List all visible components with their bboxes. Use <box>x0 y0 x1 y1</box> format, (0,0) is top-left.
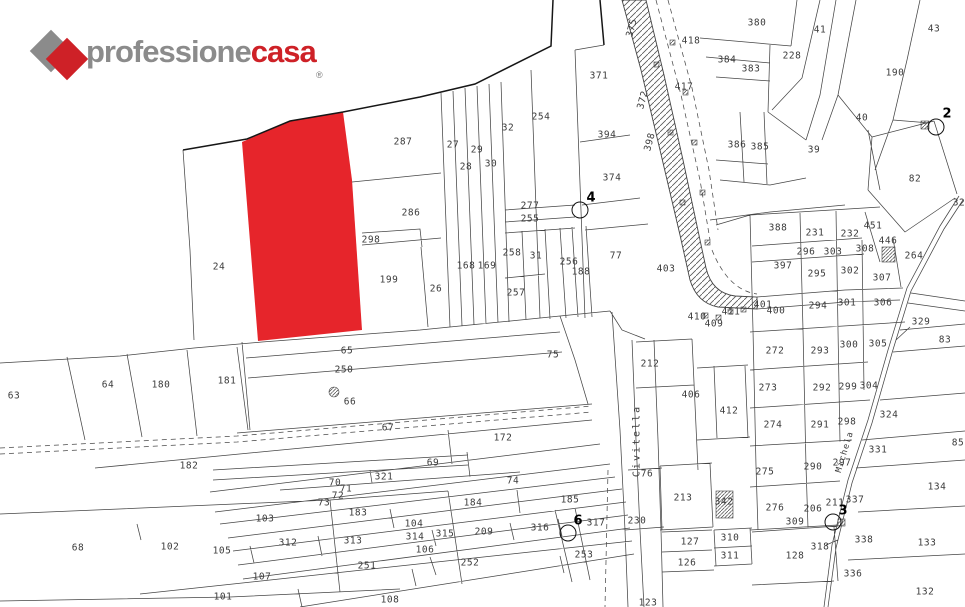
parcel-label: 386 <box>728 140 747 151</box>
parcel-label: 308 <box>856 244 875 255</box>
parcel-label: 29 <box>471 145 483 156</box>
parcel-label: 295 <box>808 269 827 280</box>
parcel-label: 290 <box>804 462 823 473</box>
parcel-label: 394 <box>598 130 617 141</box>
parcel-label: 68 <box>72 543 84 554</box>
parcel-label: 169 <box>478 261 497 272</box>
parcel-label: 310 <box>721 533 740 544</box>
parcel-label: 250 <box>335 365 354 376</box>
parcel-label: 300 <box>840 340 859 351</box>
parcel-label: 277 <box>521 201 540 212</box>
parcel-label: 294 <box>809 301 828 312</box>
parcel-label: 384 <box>718 55 737 66</box>
parcel-label: 273 <box>759 383 778 394</box>
parcel-label: 190 <box>886 68 905 79</box>
parcel-label: 380 <box>748 18 767 29</box>
parcel-label: 213 <box>674 493 693 504</box>
parcel-label: 108 <box>381 595 400 606</box>
parcel-label: 128 <box>786 551 805 562</box>
parcel-label: 67 <box>382 423 394 434</box>
parcel-label: 303 <box>824 247 843 258</box>
parcel-label: 304 <box>860 381 879 392</box>
parcel-label: 417 <box>675 82 694 93</box>
parcel-label: 301 <box>838 298 857 309</box>
cadastral-map-page: 2428728629819926272829303225427725525831… <box>0 0 965 607</box>
parcel-label: 188 <box>572 267 591 278</box>
parcel-label: 298 <box>838 417 857 428</box>
parcel-label: 264 <box>905 251 924 262</box>
parcel-label: 126 <box>678 558 697 569</box>
parcel-label: 28 <box>460 162 472 173</box>
parcel-label: 184 <box>464 498 483 509</box>
parcel-label: 412 <box>720 406 739 417</box>
parcel-label: 40 <box>856 113 868 124</box>
parcel-label: 383 <box>742 64 761 75</box>
parcel-label: 331 <box>869 445 888 456</box>
parcel-label: 385 <box>751 142 770 153</box>
survey-point-circle <box>825 514 842 531</box>
parcel-label: 24 <box>213 262 225 273</box>
survey-point-number: 4 <box>586 191 595 206</box>
parcel-label: 409 <box>705 319 724 330</box>
parcel-labels-layer: 2428728629819926272829303225427725525831… <box>0 0 965 607</box>
parcel-label: 336 <box>844 569 863 580</box>
parcel-label: 31 <box>530 251 542 262</box>
registered-trademark-symbol: ® <box>316 70 323 80</box>
parcel-label: 318 <box>811 542 830 553</box>
parcel-label: 272 <box>766 346 785 357</box>
parcel-label: 134 <box>928 482 947 493</box>
parcel-label: 311 <box>721 551 740 562</box>
parcel-label: 76 <box>641 469 653 480</box>
parcel-label: 321 <box>375 472 394 483</box>
parcel-label: 73 <box>318 498 330 509</box>
parcel-label: 83 <box>939 335 951 346</box>
parcel-label-rotated: 375 <box>624 18 639 39</box>
survey-point-circle <box>572 202 589 219</box>
parcel-label: 312 <box>279 538 298 549</box>
parcel-label: 230 <box>628 516 647 527</box>
parcel-label: 411 <box>722 307 741 318</box>
parcel-label: 397 <box>774 261 793 272</box>
parcel-label: 105 <box>213 546 232 557</box>
parcel-label: 199 <box>380 275 399 286</box>
parcel-label: 107 <box>253 572 272 583</box>
parcel-label: 206 <box>804 504 823 515</box>
parcel-label: 232 <box>841 229 860 240</box>
parcel-label: 302 <box>841 266 860 277</box>
parcel-label: 41 <box>814 25 826 36</box>
parcel-label: 209 <box>475 527 494 538</box>
parcel-label: 231 <box>806 228 825 239</box>
parcel-label: 305 <box>869 339 888 350</box>
parcel-label: 403 <box>657 264 676 275</box>
professionecasa-logo: professionecasa ® <box>28 26 348 86</box>
logo-wordmark: professionecasa <box>86 34 316 70</box>
parcel-label: 410 <box>688 312 707 323</box>
parcel-label: 401 <box>754 300 773 311</box>
parcel-label: 212 <box>641 359 660 370</box>
parcel-label: 133 <box>918 538 937 549</box>
parcel-label: 104 <box>405 519 424 530</box>
parcel-label: 65 <box>341 346 353 357</box>
parcel-label: 337 <box>846 495 865 506</box>
parcel-label: 228 <box>783 51 802 62</box>
parcel-label: 85 <box>952 438 964 449</box>
parcel-label: 75 <box>547 350 559 361</box>
parcel-label: 313 <box>344 536 363 547</box>
parcel-label: 298 <box>362 235 381 246</box>
parcel-label: 172 <box>494 433 513 444</box>
parcel-label: 286 <box>402 208 421 219</box>
parcel-label: 69 <box>427 458 439 469</box>
parcel-label: 252 <box>461 558 480 569</box>
parcel-label-rotated: 398 <box>642 132 657 153</box>
parcel-label: 180 <box>152 380 171 391</box>
parcel-label: 63 <box>8 391 20 402</box>
parcel-label: 406 <box>682 390 701 401</box>
parcel-label: 132 <box>916 587 935 598</box>
parcel-label: 127 <box>681 537 700 548</box>
parcel-label: 255 <box>521 214 540 225</box>
logo-text-gray: professione <box>86 34 251 69</box>
parcel-label: 66 <box>344 397 356 408</box>
parcel-label: 306 <box>874 298 893 309</box>
parcel-label: 32 <box>502 123 514 134</box>
parcel-label: 329 <box>912 317 931 328</box>
parcel-label: 32 <box>953 198 965 209</box>
parcel-label: 181 <box>218 376 237 387</box>
parcel-label: 72 <box>332 491 344 502</box>
parcel-label: 274 <box>764 420 783 431</box>
parcel-label: 257 <box>507 288 526 299</box>
survey-point-number: 6 <box>573 514 582 529</box>
parcel-label: 307 <box>873 273 892 284</box>
parcel-label: 316 <box>531 523 550 534</box>
parcel-label: 287 <box>394 137 413 148</box>
parcel-label: 82 <box>909 174 921 185</box>
parcel-label: 39 <box>808 145 820 156</box>
parcel-label: 309 <box>786 517 805 528</box>
parcel-label: 64 <box>102 380 114 391</box>
parcel-label: 276 <box>766 503 785 514</box>
parcel-label: 418 <box>682 36 701 47</box>
parcel-label: 317 <box>587 518 606 529</box>
parcel-label: 253 <box>575 550 594 561</box>
parcel-label: 374 <box>603 173 622 184</box>
parcel-label: 388 <box>769 223 788 234</box>
parcel-label: 338 <box>855 535 874 546</box>
parcel-label: 123 <box>639 598 658 607</box>
parcel-label: 168 <box>457 261 476 272</box>
parcel-label: 101 <box>214 592 233 603</box>
survey-point-circle <box>928 119 945 136</box>
parcel-label: 77 <box>610 251 622 262</box>
parcel-label: 254 <box>532 112 551 123</box>
region-name-label: Civitella <box>632 405 643 477</box>
parcel-label: 446 <box>879 236 898 247</box>
parcel-label: 293 <box>811 346 830 357</box>
parcel-label-rotated: 372 <box>635 90 650 111</box>
parcel-label: 371 <box>590 71 609 82</box>
parcel-label: 103 <box>256 514 275 525</box>
parcel-label: 74 <box>507 476 519 487</box>
parcel-label: 102 <box>161 542 180 553</box>
parcel-label: 275 <box>756 467 775 478</box>
parcel-label: 30 <box>485 159 497 170</box>
parcel-label: 43 <box>928 24 940 35</box>
parcel-label: 106 <box>416 545 435 556</box>
parcel-label: 314 <box>406 532 425 543</box>
parcel-label: 292 <box>813 383 832 394</box>
parcel-label: 342 <box>715 497 734 508</box>
survey-point-circle <box>560 525 577 542</box>
parcel-label: 324 <box>880 410 899 421</box>
parcel-label: 299 <box>839 382 858 393</box>
parcel-label: 315 <box>436 529 455 540</box>
parcel-label: 296 <box>797 247 816 258</box>
parcel-label: 26 <box>430 284 442 295</box>
survey-point-number: 2 <box>942 107 951 122</box>
logo-text-red: casa <box>251 34 316 69</box>
parcel-label: 27 <box>447 140 459 151</box>
parcel-label: 291 <box>811 420 830 431</box>
parcel-label: 182 <box>180 461 199 472</box>
parcel-label: 251 <box>358 561 377 572</box>
parcel-label: 183 <box>349 508 368 519</box>
parcel-label: 185 <box>561 495 580 506</box>
parcel-label: 258 <box>503 248 522 259</box>
parcel-label: 451 <box>864 221 883 232</box>
